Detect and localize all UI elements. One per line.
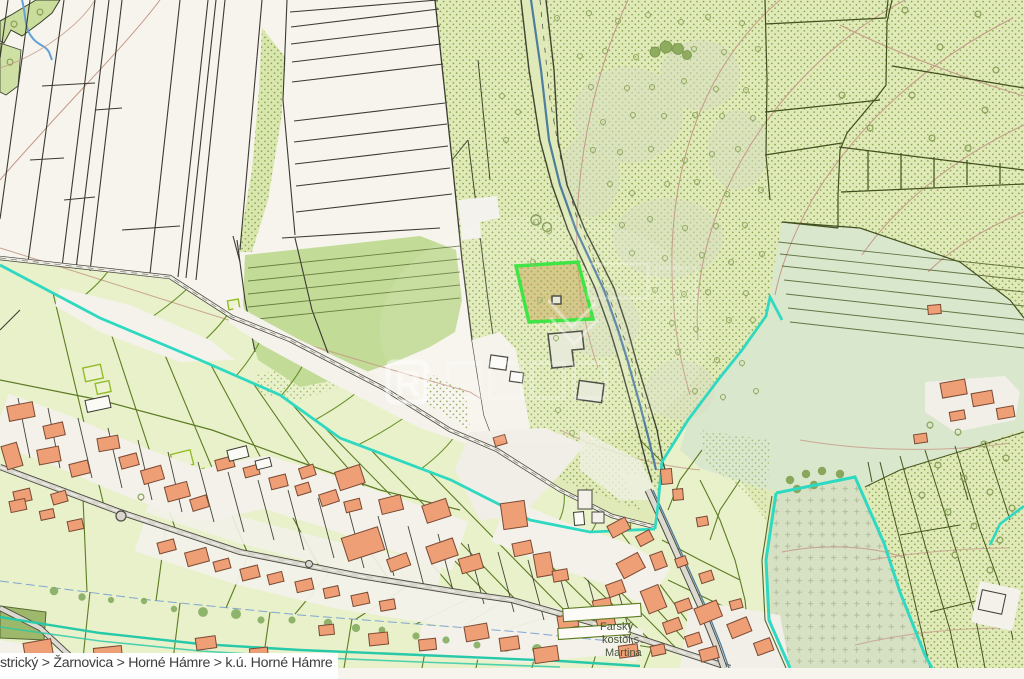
svg-text:Farský: Farský [600,621,634,633]
svg-text:kostol s: kostol s [602,634,640,646]
svg-text:R: R [395,363,421,404]
svg-text:Martina: Martina [605,647,643,659]
